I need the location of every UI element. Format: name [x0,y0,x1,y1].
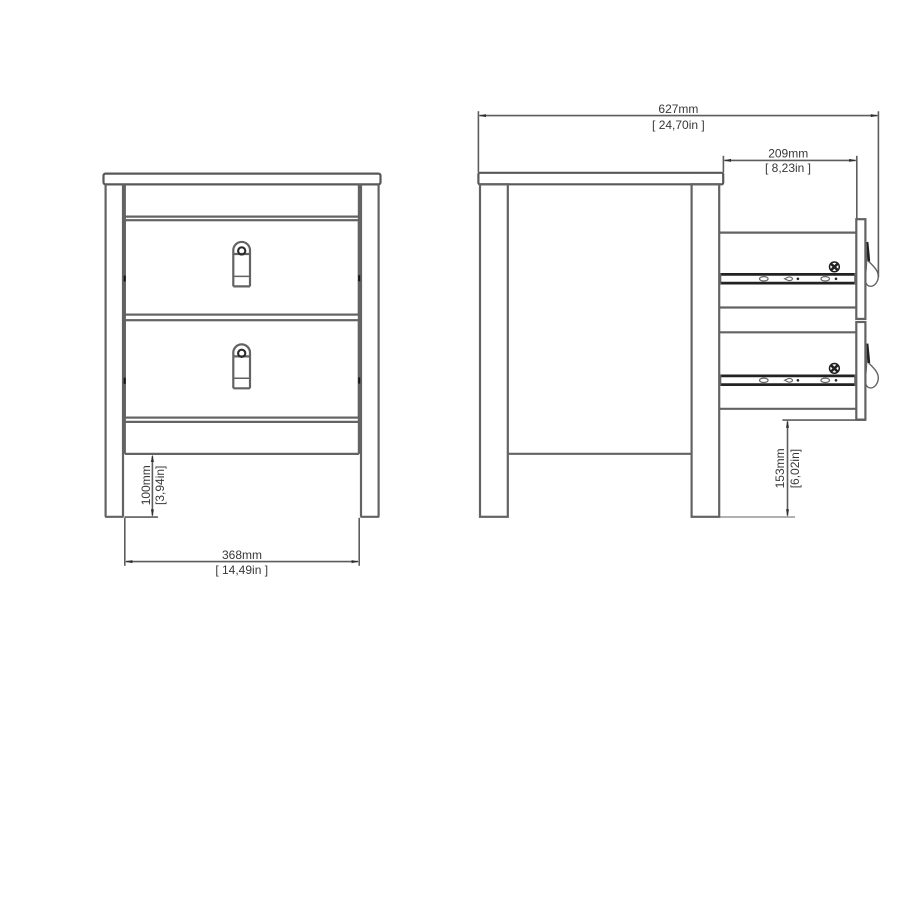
svg-text:368mm: 368mm [222,548,262,562]
svg-text:[ 24,70in ]: [ 24,70in ] [652,118,705,132]
svg-text:[6,02in]: [6,02in] [788,449,802,488]
svg-text:[ 14,49in ]: [ 14,49in ] [215,563,268,577]
svg-text:153mm: 153mm [773,448,787,488]
svg-text:209mm: 209mm [768,147,808,161]
svg-text:[3,94in]: [3,94in] [153,466,167,505]
svg-text:[ 8,23in ]: [ 8,23in ] [765,161,811,175]
svg-text:100mm: 100mm [139,465,153,505]
svg-text:627mm: 627mm [658,102,698,116]
